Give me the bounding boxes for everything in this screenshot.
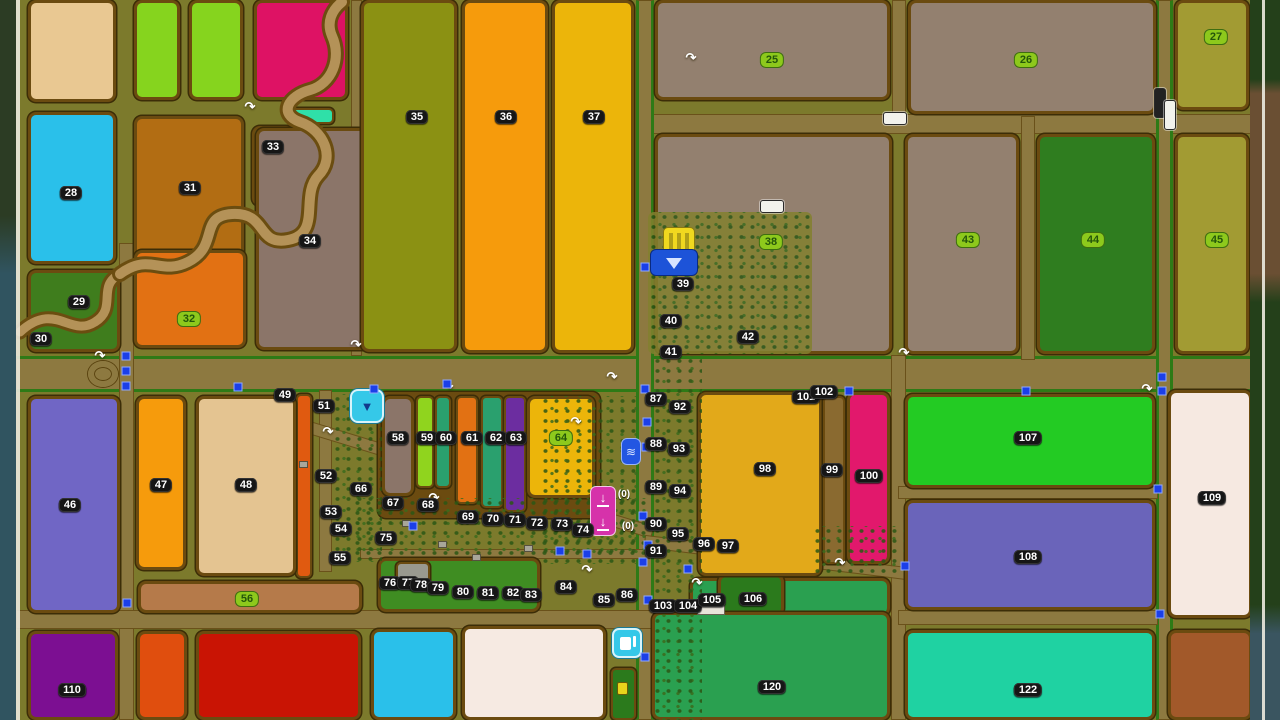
field-label-81: 81 bbox=[477, 586, 499, 600]
road bbox=[119, 243, 134, 720]
road bbox=[891, 355, 906, 720]
house-icon bbox=[299, 461, 308, 468]
field-label-60: 60 bbox=[435, 431, 457, 445]
field-label-42: 42 bbox=[737, 330, 759, 344]
traffic-node-icon bbox=[684, 565, 693, 574]
field-label-85: 85 bbox=[593, 593, 615, 607]
field-label-33: 33 bbox=[262, 140, 284, 154]
field-label-61: 61 bbox=[461, 431, 483, 445]
field-label-97: 97 bbox=[717, 539, 739, 553]
field-label-45: 45 bbox=[1206, 233, 1228, 247]
traffic-node-icon bbox=[639, 558, 648, 567]
field-label-53: 53 bbox=[320, 505, 342, 519]
field-label-64: 64 bbox=[550, 431, 572, 445]
map-border-line bbox=[16, 0, 20, 720]
field-entry-icon: ↷ bbox=[833, 556, 847, 570]
field-label-71: 71 bbox=[504, 513, 526, 527]
field-label-66: 66 bbox=[350, 482, 372, 496]
field-label-52: 52 bbox=[315, 469, 337, 483]
house-icon bbox=[524, 545, 533, 552]
field-label-98: 98 bbox=[754, 462, 776, 476]
road bbox=[1021, 116, 1035, 360]
field-label-99: 99 bbox=[821, 463, 843, 477]
field-label-27: 27 bbox=[1205, 30, 1227, 44]
field-label-108: 108 bbox=[1014, 550, 1042, 564]
traffic-node-icon bbox=[641, 653, 650, 662]
field-label-34: 34 bbox=[299, 234, 321, 248]
plot[interactable] bbox=[134, 0, 180, 100]
field-label-88: 88 bbox=[645, 437, 667, 451]
field-label-39: 39 bbox=[672, 277, 694, 291]
field-label-54: 54 bbox=[330, 522, 352, 536]
traffic-node-icon bbox=[122, 352, 131, 361]
plot[interactable] bbox=[189, 0, 243, 100]
water-icon[interactable] bbox=[650, 249, 698, 276]
field-label-40: 40 bbox=[660, 314, 682, 328]
field-label-84: 84 bbox=[555, 580, 577, 594]
map-border-line bbox=[1262, 0, 1265, 720]
field-37[interactable] bbox=[552, 0, 634, 353]
field-label-96: 96 bbox=[693, 537, 715, 551]
field-label-36: 36 bbox=[495, 110, 517, 124]
traffic-node-icon bbox=[641, 263, 650, 272]
traffic-node-icon bbox=[1158, 387, 1167, 396]
field-label-102: 102 bbox=[810, 385, 838, 399]
field-label-73: 73 bbox=[551, 517, 573, 531]
field-label-28: 28 bbox=[60, 186, 82, 200]
field-61[interactable] bbox=[456, 396, 478, 504]
field-35[interactable] bbox=[361, 0, 457, 352]
house-icon bbox=[472, 554, 481, 561]
field-entry-icon: ↷ bbox=[605, 370, 619, 384]
water-edge bbox=[0, 0, 16, 720]
marker-count: (0) bbox=[616, 520, 640, 532]
field-label-75: 75 bbox=[375, 531, 397, 545]
blue-marker-icon[interactable] bbox=[621, 438, 641, 465]
traffic-node-icon bbox=[583, 550, 592, 559]
traffic-node-icon bbox=[556, 547, 565, 556]
field-32[interactable] bbox=[134, 250, 246, 348]
traffic-node-icon bbox=[1156, 610, 1165, 619]
field-entry-icon: ↷ bbox=[569, 415, 583, 429]
road bbox=[645, 114, 1280, 134]
field-36[interactable] bbox=[462, 0, 548, 353]
field-label-58: 58 bbox=[387, 431, 409, 445]
field-label-70: 70 bbox=[482, 512, 504, 526]
field-label-62: 62 bbox=[485, 431, 507, 445]
plot[interactable] bbox=[371, 629, 456, 720]
field-label-86: 86 bbox=[616, 588, 638, 602]
field-99[interactable] bbox=[823, 396, 845, 564]
field-label-51: 51 bbox=[313, 399, 335, 413]
field-label-30: 30 bbox=[30, 332, 52, 346]
field-entry-icon: ↷ bbox=[690, 576, 704, 590]
field-label-68: 68 bbox=[417, 498, 439, 512]
fuel-station-icon[interactable] bbox=[612, 628, 642, 658]
field-122[interactable] bbox=[905, 630, 1155, 720]
field-label-89: 89 bbox=[645, 480, 667, 494]
plot[interactable] bbox=[288, 108, 334, 124]
field-entry-icon: ↷ bbox=[93, 349, 107, 363]
field-110[interactable] bbox=[28, 631, 118, 720]
road bbox=[898, 610, 1158, 625]
field-label-90: 90 bbox=[645, 517, 667, 531]
field-label-110: 110 bbox=[58, 683, 86, 697]
marker-count: (0) bbox=[612, 488, 636, 500]
field-label-122: 122 bbox=[1014, 683, 1042, 697]
field-label-105: 105 bbox=[698, 593, 726, 607]
field-entry-icon: ↷ bbox=[349, 338, 363, 352]
field-entry-icon: ↷ bbox=[1140, 382, 1154, 396]
field-label-43: 43 bbox=[957, 233, 979, 247]
field-label-69: 69 bbox=[457, 510, 479, 524]
field-label-79: 79 bbox=[427, 581, 449, 595]
vehicle-icon[interactable] bbox=[1164, 100, 1176, 130]
field-label-26: 26 bbox=[1015, 53, 1037, 67]
field-label-32: 32 bbox=[178, 312, 200, 326]
field-entry-icon: ↷ bbox=[580, 563, 594, 577]
field-label-67: 67 bbox=[382, 496, 404, 510]
field-27[interactable] bbox=[1175, 0, 1249, 110]
field-label-106: 106 bbox=[739, 592, 767, 606]
vehicle-icon[interactable] bbox=[883, 112, 907, 125]
traffic-node-icon bbox=[122, 382, 131, 391]
traffic-node-icon bbox=[409, 522, 418, 531]
field-label-55: 55 bbox=[329, 551, 351, 565]
field-entry-icon: ↷ bbox=[321, 425, 335, 439]
field-label-100: 100 bbox=[855, 469, 883, 483]
field-label-46: 46 bbox=[59, 498, 81, 512]
traffic-node-icon bbox=[1022, 387, 1031, 396]
plot[interactable] bbox=[28, 0, 116, 102]
field-64[interactable] bbox=[527, 396, 595, 498]
traffic-node-icon bbox=[122, 367, 131, 376]
plot[interactable] bbox=[1168, 630, 1252, 720]
traffic-node-icon bbox=[123, 599, 132, 608]
traffic-node-icon bbox=[443, 380, 452, 389]
field-label-87: 87 bbox=[645, 392, 667, 406]
plot[interactable] bbox=[137, 631, 187, 720]
traffic-node-icon bbox=[1154, 485, 1163, 494]
field-label-49: 49 bbox=[274, 388, 296, 402]
field-label-44: 44 bbox=[1082, 233, 1104, 247]
field-label-56: 56 bbox=[236, 592, 258, 606]
field-label-37: 37 bbox=[583, 110, 605, 124]
roundabout-icon bbox=[88, 361, 118, 387]
vehicle-icon[interactable] bbox=[760, 200, 784, 213]
field-entry-icon: ↷ bbox=[243, 100, 257, 114]
plot[interactable] bbox=[196, 631, 361, 720]
traffic-node-icon bbox=[643, 418, 652, 427]
field-58[interactable] bbox=[382, 396, 414, 496]
field-label-47: 47 bbox=[150, 478, 172, 492]
field-label-83: 83 bbox=[520, 588, 542, 602]
trees-edge bbox=[1250, 0, 1280, 720]
marker-yellow-icon bbox=[617, 682, 628, 695]
plot[interactable] bbox=[254, 0, 348, 100]
shop-icon[interactable] bbox=[350, 389, 384, 423]
field-entry-icon: ↷ bbox=[897, 346, 911, 360]
traffic-node-icon bbox=[901, 562, 910, 571]
field-label-31: 31 bbox=[179, 181, 201, 195]
field-label-107: 107 bbox=[1014, 431, 1042, 445]
field-label-109: 109 bbox=[1198, 491, 1226, 505]
field-label-72: 72 bbox=[526, 516, 548, 530]
field-label-93: 93 bbox=[668, 442, 690, 456]
traffic-node-icon bbox=[234, 383, 243, 392]
field-120[interactable] bbox=[652, 612, 890, 720]
field-label-29: 29 bbox=[68, 295, 90, 309]
map-canvas: 2526272829303132333435363738394041424344… bbox=[0, 0, 1280, 720]
field-label-91: 91 bbox=[645, 544, 667, 558]
field-entry-icon: ↷ bbox=[684, 51, 698, 65]
house-icon bbox=[438, 541, 447, 548]
field-label-74: 74 bbox=[572, 523, 594, 537]
traffic-node-icon bbox=[370, 385, 379, 394]
field-label-92: 92 bbox=[669, 400, 691, 414]
field-label-25: 25 bbox=[761, 53, 783, 67]
field-62[interactable] bbox=[481, 396, 503, 508]
road bbox=[892, 0, 906, 120]
field-label-94: 94 bbox=[669, 484, 691, 498]
traffic-node-icon bbox=[1158, 373, 1167, 382]
field-63[interactable] bbox=[504, 396, 526, 512]
field-label-38: 38 bbox=[760, 235, 782, 249]
field-label-48: 48 bbox=[235, 478, 257, 492]
plot[interactable] bbox=[296, 394, 312, 578]
field-label-95: 95 bbox=[667, 527, 689, 541]
field-label-35: 35 bbox=[406, 110, 428, 124]
field-label-120: 120 bbox=[758, 680, 786, 694]
traffic-node-icon bbox=[845, 387, 854, 396]
plot[interactable] bbox=[462, 626, 606, 720]
field-label-63: 63 bbox=[505, 431, 527, 445]
field-label-80: 80 bbox=[452, 585, 474, 599]
field-label-41: 41 bbox=[660, 345, 682, 359]
